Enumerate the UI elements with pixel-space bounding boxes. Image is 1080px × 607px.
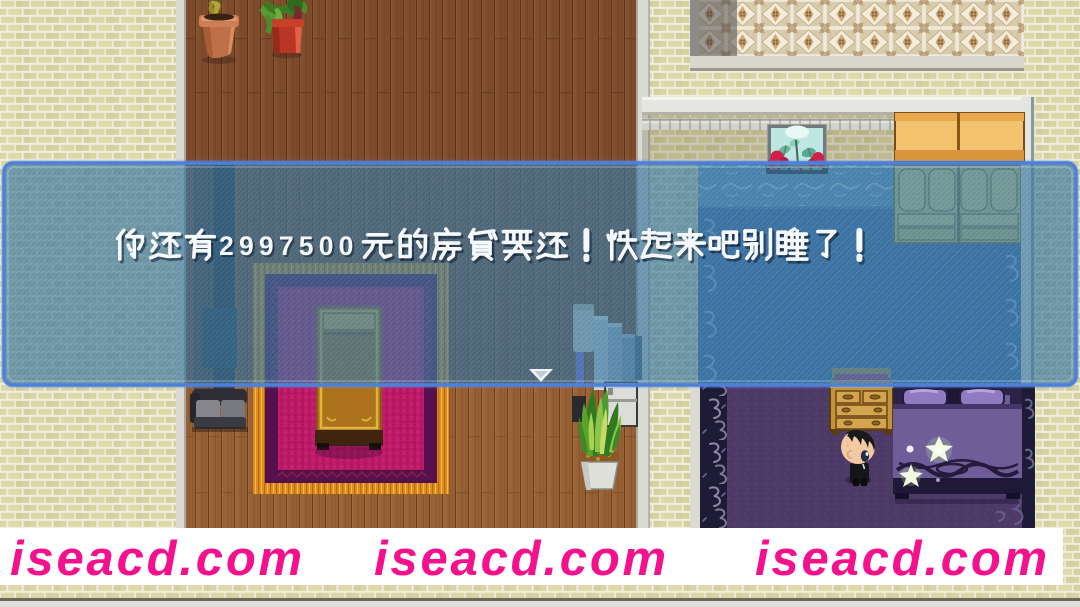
svg-text:iseacd.com: iseacd.com: [755, 532, 1050, 586]
svg-text:iseacd.com: iseacd.com: [374, 532, 669, 586]
svg-text:2997500: 2997500: [219, 231, 359, 261]
svg-text:iseacd.com: iseacd.com: [10, 532, 305, 586]
